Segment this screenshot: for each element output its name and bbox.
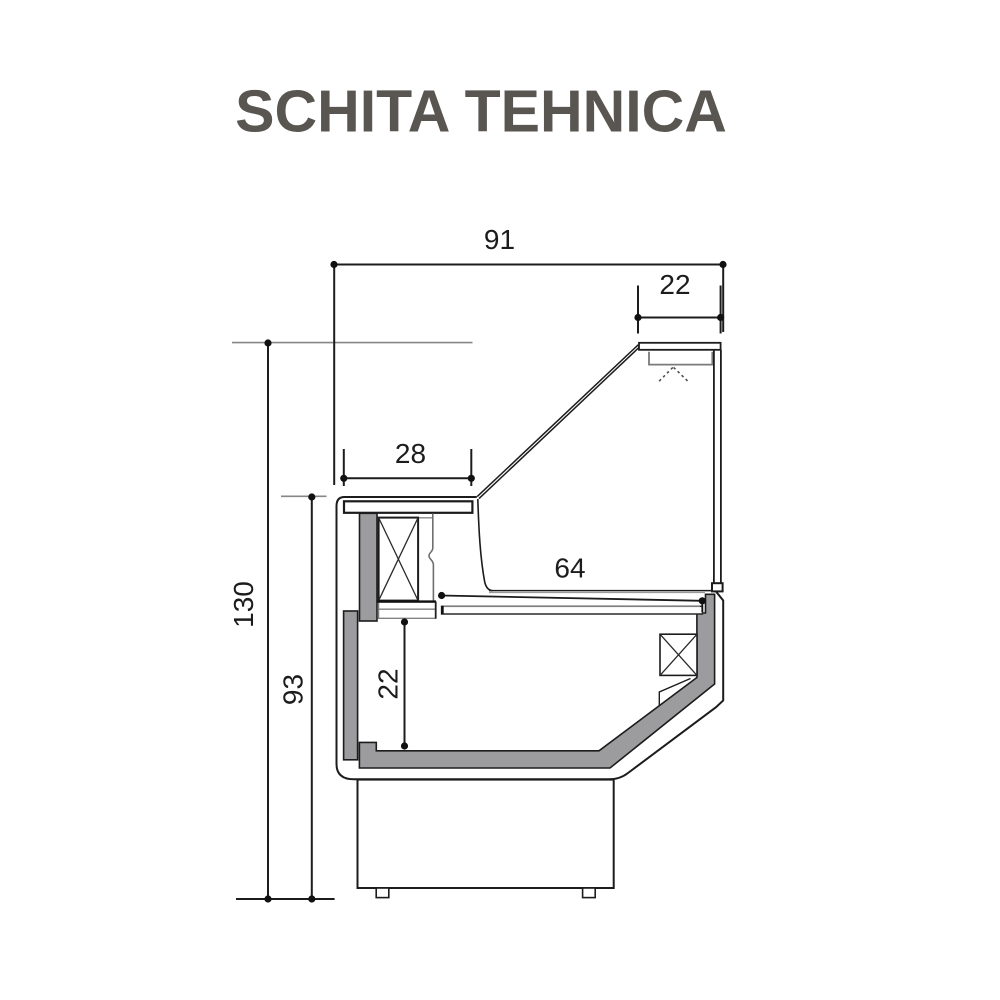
svg-text:93: 93 xyxy=(278,674,309,705)
svg-text:SCHITA TEHNICA: SCHITA TEHNICA xyxy=(235,79,727,145)
svg-text:64: 64 xyxy=(554,553,585,584)
svg-text:91: 91 xyxy=(484,224,515,255)
svg-text:22: 22 xyxy=(659,269,690,300)
svg-text:22: 22 xyxy=(373,668,404,699)
svg-text:130: 130 xyxy=(228,581,259,628)
svg-text:28: 28 xyxy=(395,438,426,469)
